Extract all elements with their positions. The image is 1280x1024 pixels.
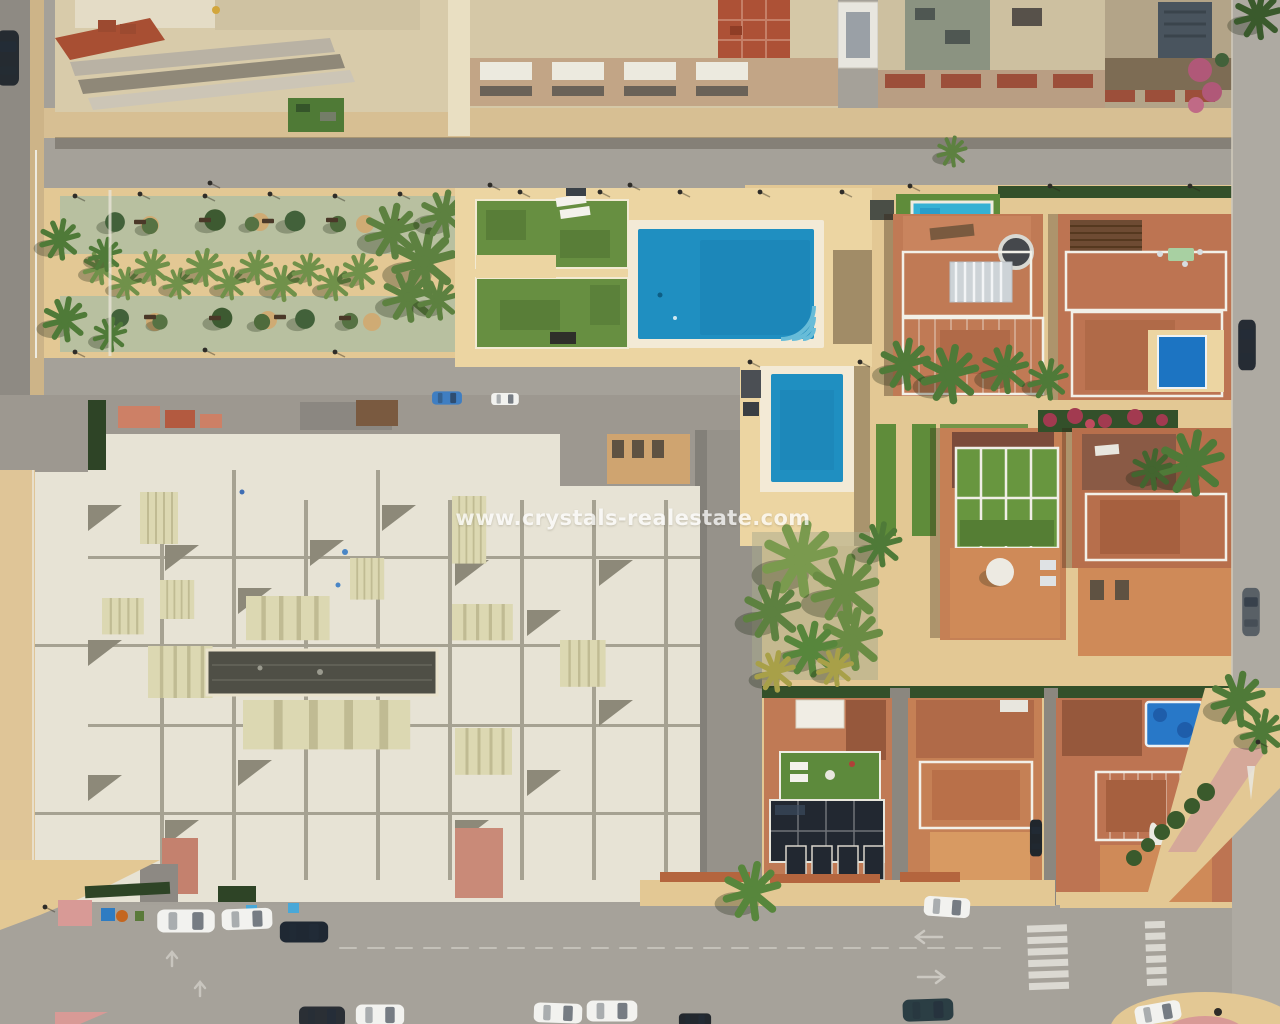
parked-car (1242, 588, 1260, 636)
secondary-pool-deck (740, 358, 870, 546)
parked-car (491, 393, 519, 405)
parked-car (1030, 820, 1042, 857)
central-palm-garden (735, 524, 900, 690)
parked-car (1238, 320, 1256, 371)
bin (116, 910, 128, 922)
recycling-bin (101, 908, 115, 921)
villa-pool (1158, 336, 1206, 388)
communal-pool-area (455, 188, 872, 367)
aerial-scene (0, 0, 1280, 1024)
parked-car (432, 391, 462, 404)
white-canopy (796, 700, 844, 728)
top-apartment-buildings (30, 0, 1232, 149)
villa-6 (908, 698, 1042, 902)
parked-car (0, 30, 19, 85)
apartment-block-far-right (1105, 0, 1232, 113)
aerial-photo: www.crystals-realestate.com (0, 0, 1280, 1024)
louver-pergola (950, 262, 1012, 302)
parking-sign (288, 903, 299, 913)
parasol (986, 558, 1014, 586)
apartment-block-right (878, 0, 1105, 108)
red-tiled-patio (718, 0, 790, 60)
linear-park (34, 188, 465, 358)
villa-5-solar (764, 698, 892, 902)
villa-2 (1048, 214, 1232, 400)
